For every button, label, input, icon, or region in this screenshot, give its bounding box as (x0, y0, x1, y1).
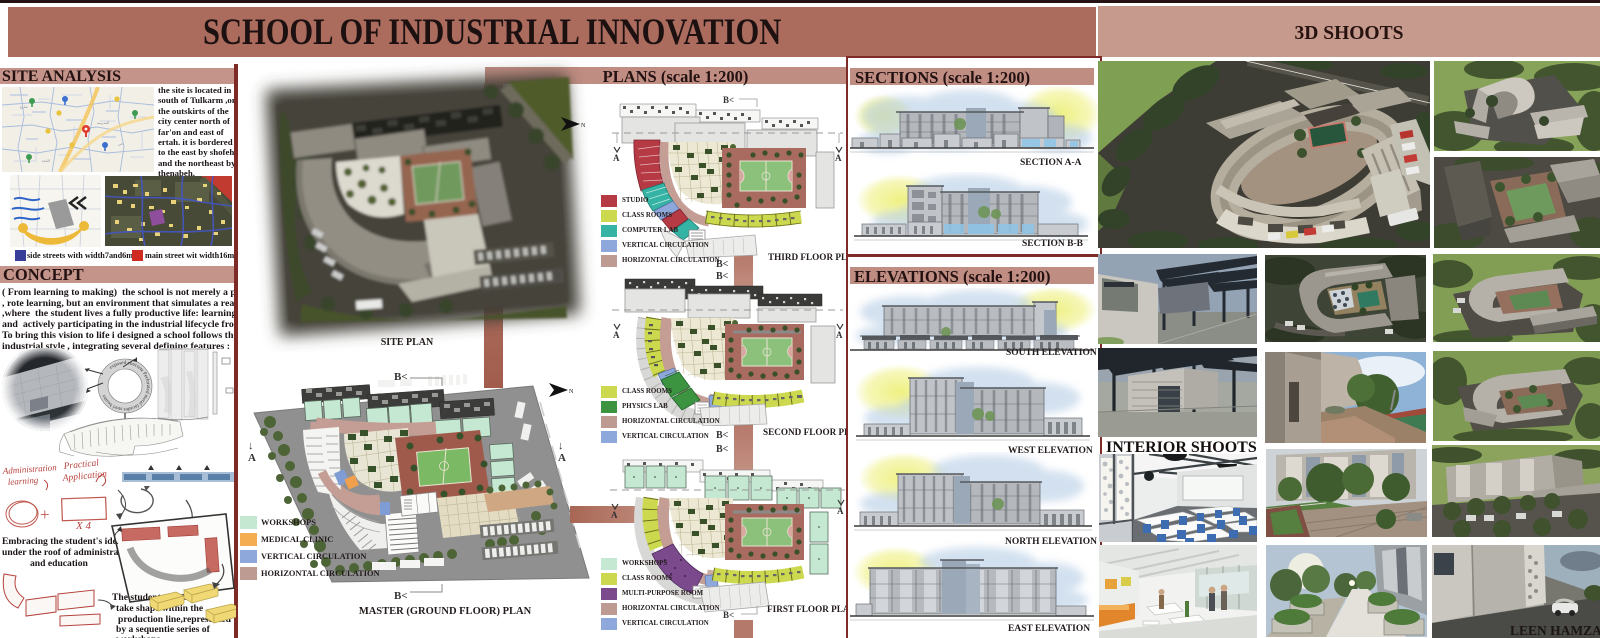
svg-text:شارع: شارع (20, 105, 28, 109)
svg-text:A: A (835, 153, 842, 163)
svg-text:X 4: X 4 (75, 520, 91, 532)
svg-text:Embracing the student's ideas: Embracing the student's ideas (2, 536, 126, 547)
svg-text:under the roof of administrati: under the roof of administration (2, 547, 135, 558)
svg-text:B<: B< (723, 95, 734, 105)
svg-text:البلدة: البلدة (42, 159, 50, 163)
svg-text:A: A (611, 510, 618, 520)
svg-text:A: A (836, 330, 843, 340)
svg-text:A: A (613, 153, 620, 163)
svg-text:A: A (837, 506, 844, 516)
svg-text:N: N (581, 123, 586, 129)
svg-text:Administration: Administration (1, 462, 57, 476)
svg-text:حي: حي (118, 142, 123, 146)
svg-text:workshops: workshops (116, 634, 161, 638)
svg-text:+: + (40, 505, 50, 524)
svg-text:المدرسة: المدرسة (97, 121, 109, 125)
svg-text:A: A (613, 330, 620, 340)
svg-text:learning: learning (7, 475, 39, 487)
svg-text:Application: Application (61, 469, 107, 484)
svg-text:and education: and education (30, 558, 89, 569)
svg-text:N: N (569, 389, 574, 395)
